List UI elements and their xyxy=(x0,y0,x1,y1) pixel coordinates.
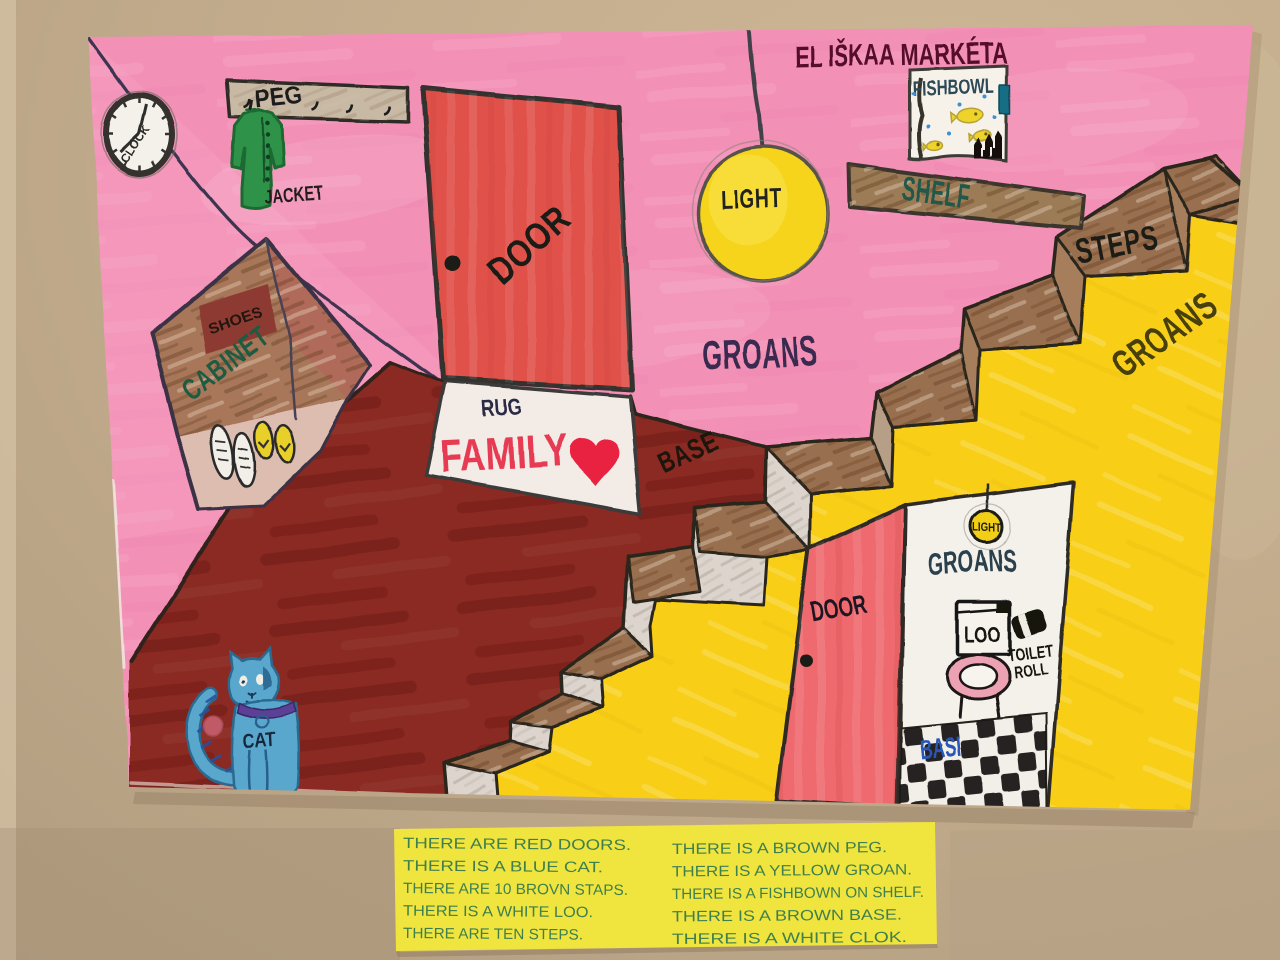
svg-text:THERE IS A YELLOW GROAN.: THERE IS A YELLOW GROAN. xyxy=(672,861,912,880)
svg-text:GROANS: GROANS xyxy=(701,327,819,380)
svg-text:THERE IS A BROWN PEG.: THERE IS A BROWN PEG. xyxy=(672,839,887,858)
svg-text:LOO: LOO xyxy=(965,621,1001,647)
svg-text:THERE IS A BLUE CAT.: THERE IS A BLUE CAT. xyxy=(403,858,603,877)
svg-text:RUG: RUG xyxy=(481,393,523,422)
svg-text:LIGHT: LIGHT xyxy=(720,183,783,215)
svg-text:THERE IS A WHITE CLOK.: THERE IS A WHITE CLOK. xyxy=(672,929,907,948)
svg-text:BASI: BASI xyxy=(917,731,962,766)
svg-text:FAMILY: FAMILY xyxy=(439,423,570,482)
svg-text:GROANS: GROANS xyxy=(928,542,1018,582)
svg-text:ROLL: ROLL xyxy=(1012,661,1048,683)
svg-text:THERE ARE 10 BROVN STAPS.: THERE ARE 10 BROVN STAPS. xyxy=(403,880,628,899)
svg-text:EL IŠKAA MARKÉTA: EL IŠKAA MARKÉTA xyxy=(794,36,1009,74)
svg-text:PEG: PEG xyxy=(253,79,304,114)
svg-text:THERE ARE RED DOORS.: THERE ARE RED DOORS. xyxy=(403,835,631,854)
svg-text:CAT: CAT xyxy=(243,729,276,753)
svg-text:LIGHT: LIGHT xyxy=(973,521,1003,535)
svg-text:FISHBOWL: FISHBOWL xyxy=(912,75,995,101)
svg-text:JACKET: JACKET xyxy=(264,183,323,209)
svg-text:THERE IS A BROWN BASE.: THERE IS A BROWN BASE. xyxy=(672,906,902,925)
svg-text:THERE IS A WHITE LOO.: THERE IS A WHITE LOO. xyxy=(403,903,593,922)
svg-text:THERE IS A FISHBOWN ON SHEL: THERE IS A FISHBOWN ON SHELF. xyxy=(672,884,924,903)
svg-text:THERE ARE TEN STEPS.: THERE ARE TEN STEPS. xyxy=(403,925,583,944)
